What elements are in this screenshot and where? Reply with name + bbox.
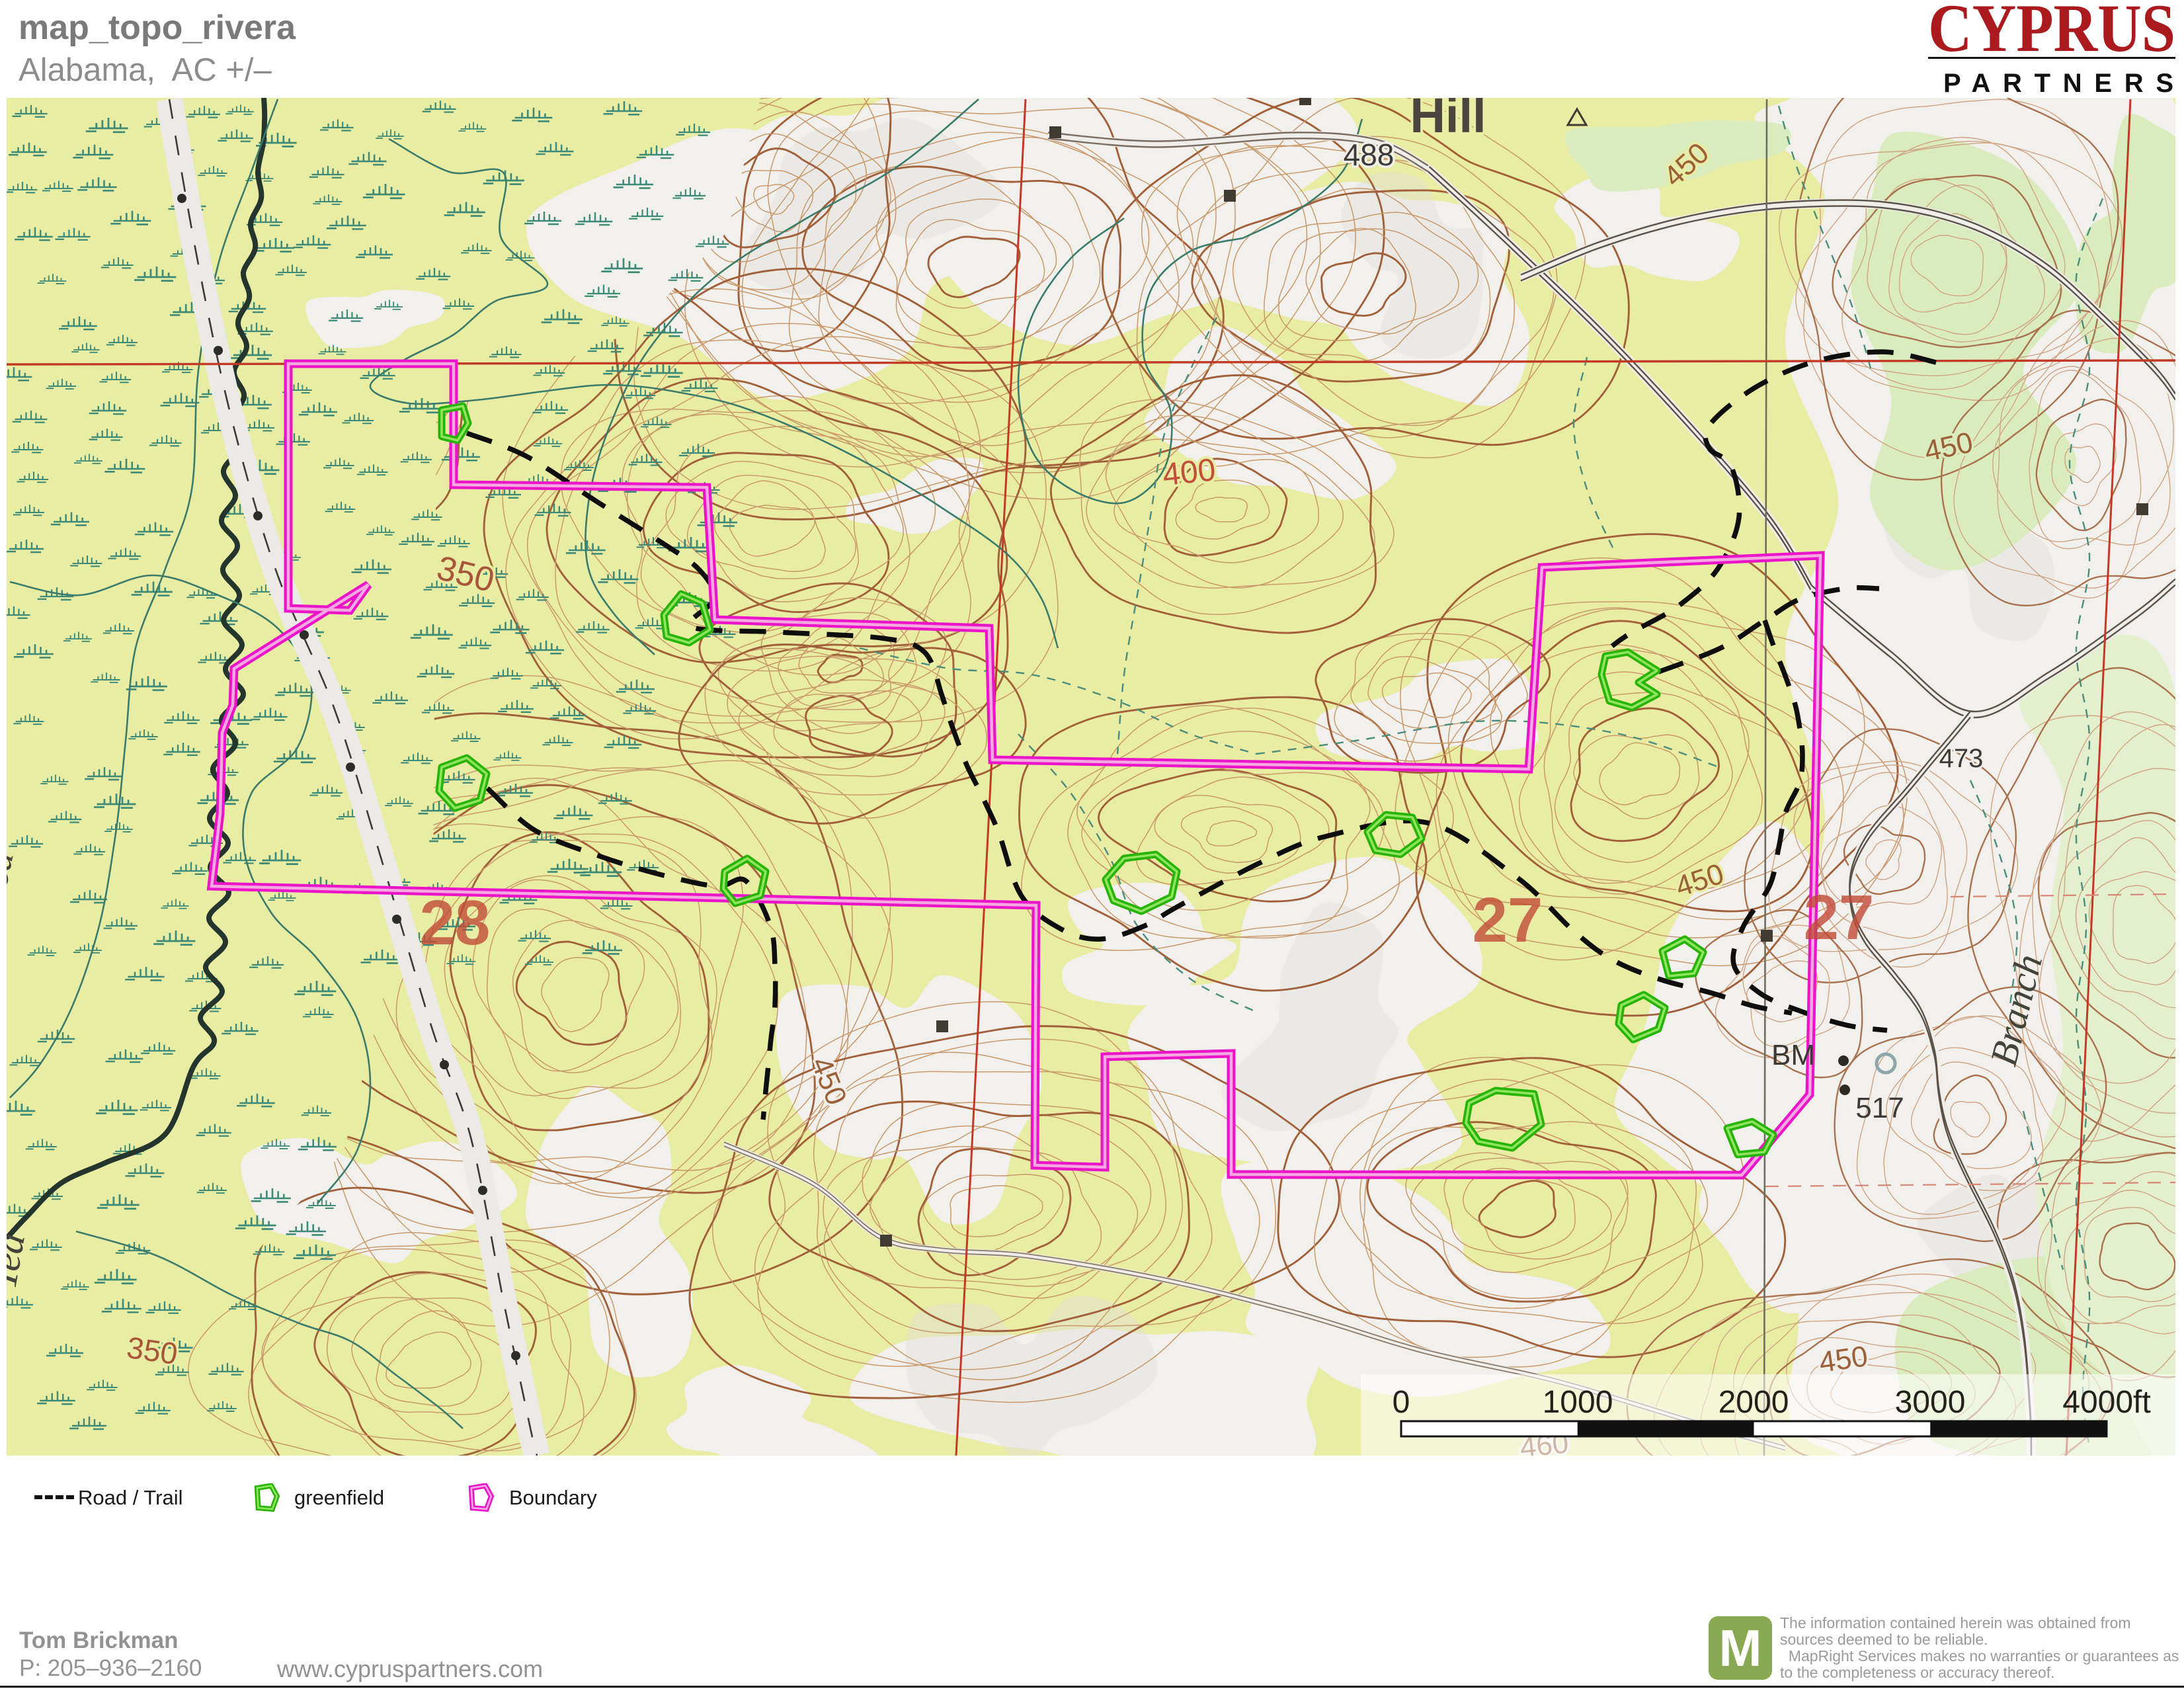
svg-text:0: 0 [1393, 1385, 1410, 1420]
svg-text:Hill: Hill [1410, 98, 1486, 143]
svg-text:2000: 2000 [1719, 1385, 1789, 1420]
svg-text:473: 473 [1939, 744, 1984, 773]
svg-text:CYPRUS: CYPRUS [1928, 0, 2175, 66]
svg-text:27: 27 [1804, 882, 1875, 953]
svg-text:1000: 1000 [1543, 1385, 1613, 1420]
svg-text:4000ft: 4000ft [2062, 1385, 2150, 1420]
svg-text:517: 517 [1855, 1092, 1904, 1124]
svg-text:BM: BM [1771, 1039, 1815, 1071]
svg-text:3000: 3000 [1895, 1385, 1966, 1420]
svg-text:400: 400 [1161, 452, 1217, 493]
svg-text:488: 488 [1344, 138, 1395, 172]
svg-text:350: 350 [125, 1330, 180, 1371]
svg-text:450: 450 [1817, 1340, 1870, 1379]
svg-text:27: 27 [1473, 885, 1543, 956]
svg-text:PARTNERS: PARTNERS [1943, 69, 2173, 98]
svg-text:28: 28 [420, 887, 491, 958]
